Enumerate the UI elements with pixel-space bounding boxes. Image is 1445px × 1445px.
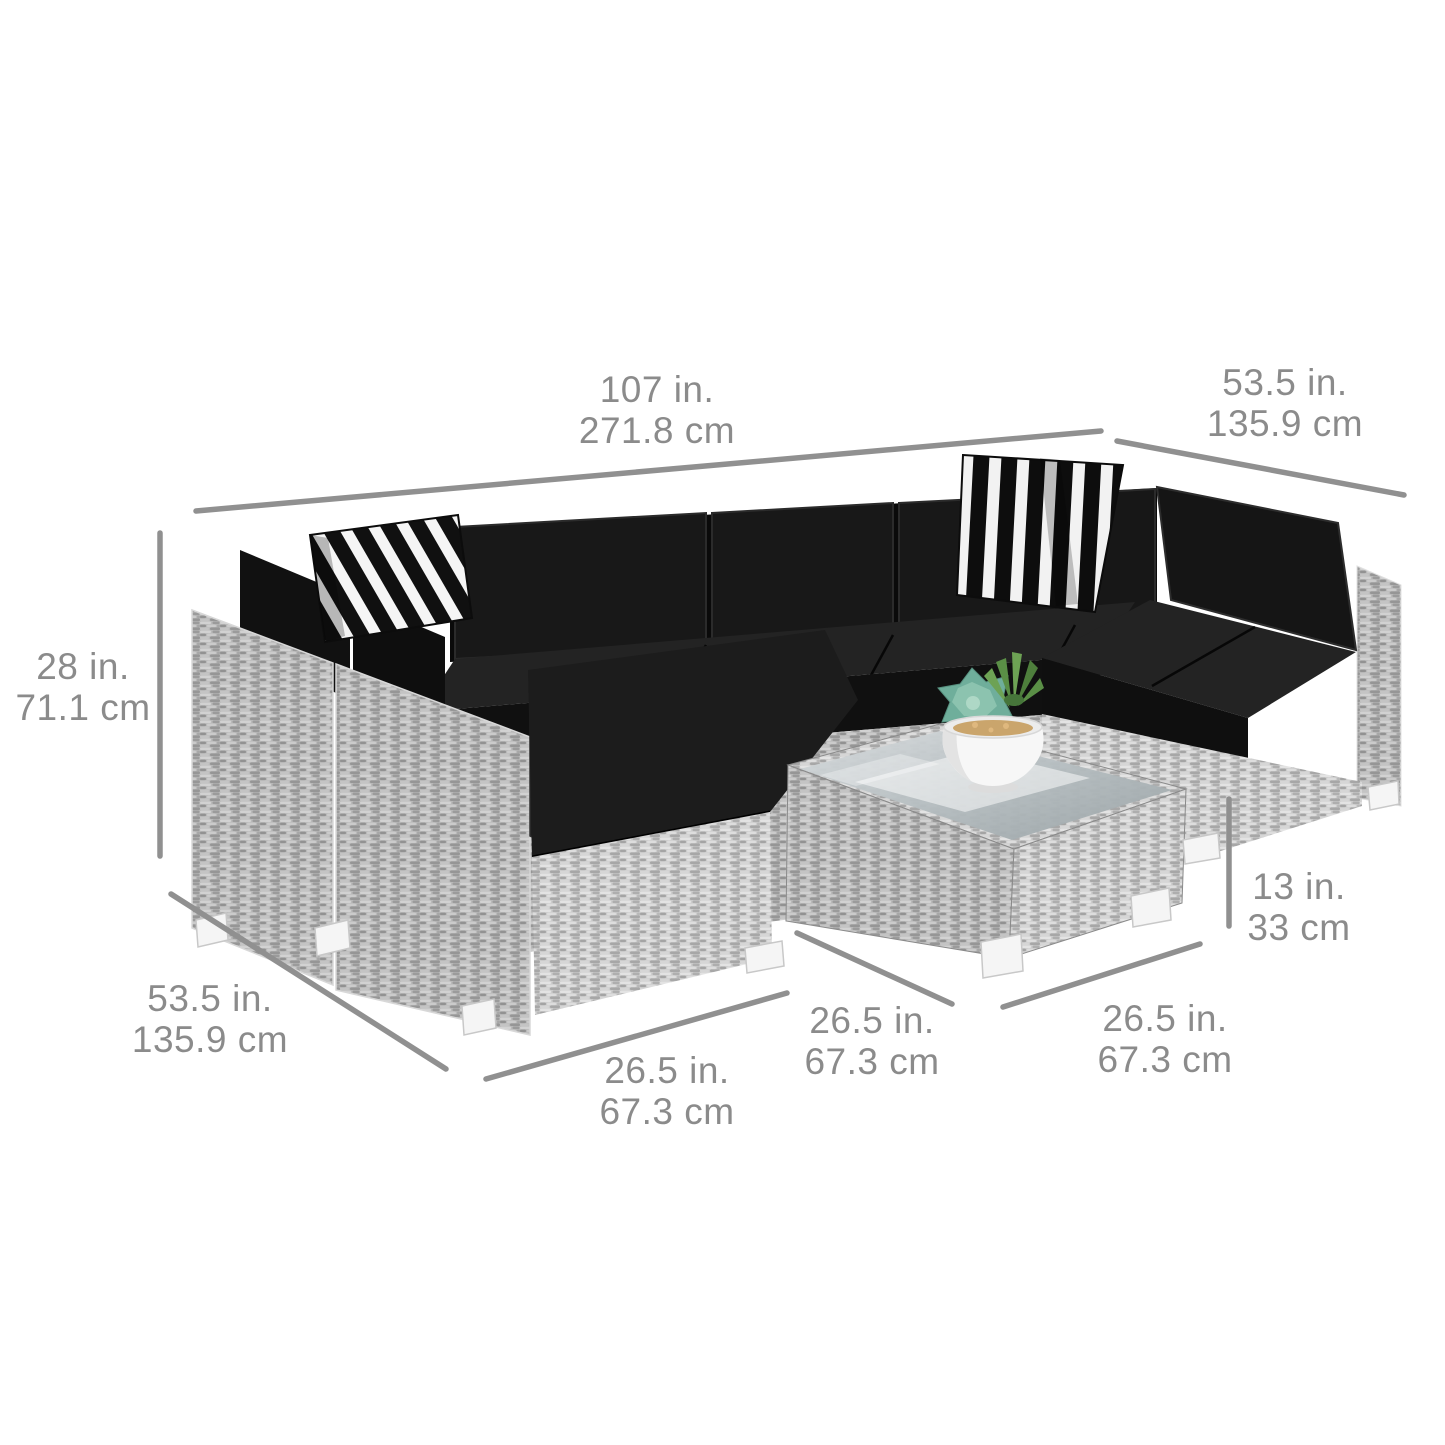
dimension-value-inches: 26.5 in. <box>804 1000 939 1041</box>
striped-throw-pillow-left <box>310 515 472 642</box>
dimension-label-seat-module-width: 26.5 in. 67.3 cm <box>599 1050 734 1132</box>
table-foot <box>981 934 1023 978</box>
dimension-value-inches: 26.5 in. <box>599 1050 734 1091</box>
dimension-value-cm: 135.9 cm <box>1207 403 1363 444</box>
dimension-value-cm: 71.1 cm <box>15 687 150 728</box>
dimension-label-sofa-depth-left: 53.5 in. 135.9 cm <box>132 978 288 1060</box>
dimension-value-cm: 271.8 cm <box>579 410 735 451</box>
dimension-value-inches: 26.5 in. <box>1097 998 1232 1039</box>
product-dimension-diagram: 107 in. 271.8 cm 53.5 in. 135.9 cm 28 in… <box>0 0 1445 1445</box>
sofa-illustration <box>0 0 1445 1445</box>
dimension-value-inches: 28 in. <box>15 646 150 687</box>
dimension-label-sofa-height: 28 in. 71.1 cm <box>15 646 150 728</box>
dimension-value-cm: 33 cm <box>1247 907 1350 948</box>
dimension-label-sofa-back-width: 107 in. 271.8 cm <box>579 369 735 451</box>
dimension-label-table-side-right: 26.5 in. 67.3 cm <box>1097 998 1232 1080</box>
dimension-value-cm: 135.9 cm <box>132 1019 288 1060</box>
dimension-label-table-height: 13 in. 33 cm <box>1247 866 1350 948</box>
dimension-value-inches: 107 in. <box>579 369 735 410</box>
dimension-label-sofa-depth-right: 53.5 in. 135.9 cm <box>1207 362 1363 444</box>
dimension-value-inches: 13 in. <box>1247 866 1350 907</box>
dimension-value-cm: 67.3 cm <box>804 1041 939 1082</box>
dimension-value-cm: 67.3 cm <box>599 1091 734 1132</box>
dimension-label-table-side-left: 26.5 in. 67.3 cm <box>804 1000 939 1082</box>
dimension-value-inches: 53.5 in. <box>1207 362 1363 403</box>
dimension-value-cm: 67.3 cm <box>1097 1039 1232 1080</box>
striped-throw-pillow-right <box>957 455 1123 612</box>
dimension-value-inches: 53.5 in. <box>132 978 288 1019</box>
